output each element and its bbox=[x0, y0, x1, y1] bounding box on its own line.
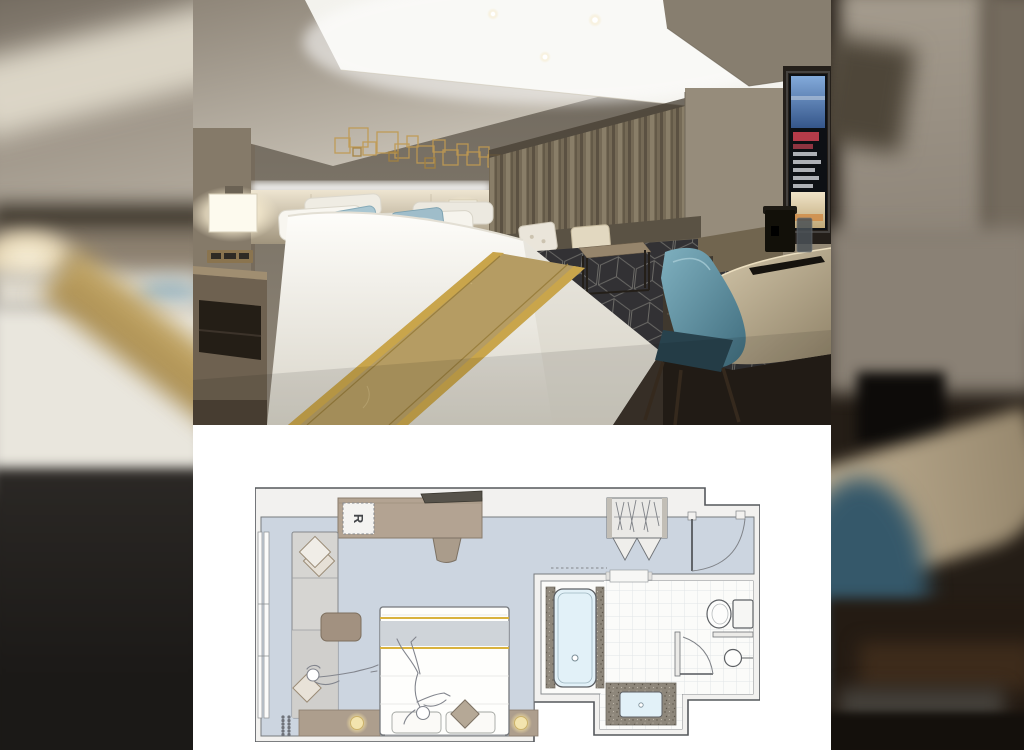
bathroom-door-opening bbox=[606, 570, 652, 582]
vanity-sink bbox=[606, 683, 676, 725]
blur-carpet bbox=[0, 468, 193, 750]
hotel-room-photo bbox=[193, 0, 831, 425]
fridge-label: R bbox=[351, 514, 366, 524]
double-bed bbox=[380, 607, 509, 735]
coffee-table bbox=[321, 613, 361, 641]
bathroom bbox=[541, 568, 753, 729]
bathtub bbox=[554, 589, 596, 687]
blur-coffee-machine bbox=[857, 372, 945, 444]
blur-floor-dark bbox=[831, 712, 1024, 750]
refrigerator: R bbox=[343, 503, 374, 534]
bedside-lamp bbox=[515, 717, 528, 730]
floor-plan: R bbox=[255, 486, 760, 742]
screen: R bbox=[0, 0, 1024, 750]
floor-plan-panel: R bbox=[193, 425, 831, 750]
bedside-lamp bbox=[351, 717, 364, 730]
room-photo-art bbox=[193, 0, 831, 425]
backdrop-right-strip bbox=[831, 0, 1024, 750]
blur-brown-bar bbox=[859, 642, 1024, 690]
backdrop-left-strip bbox=[0, 0, 193, 750]
gallery-stage: R bbox=[193, 0, 831, 750]
blur-wall bbox=[831, 228, 1024, 393]
